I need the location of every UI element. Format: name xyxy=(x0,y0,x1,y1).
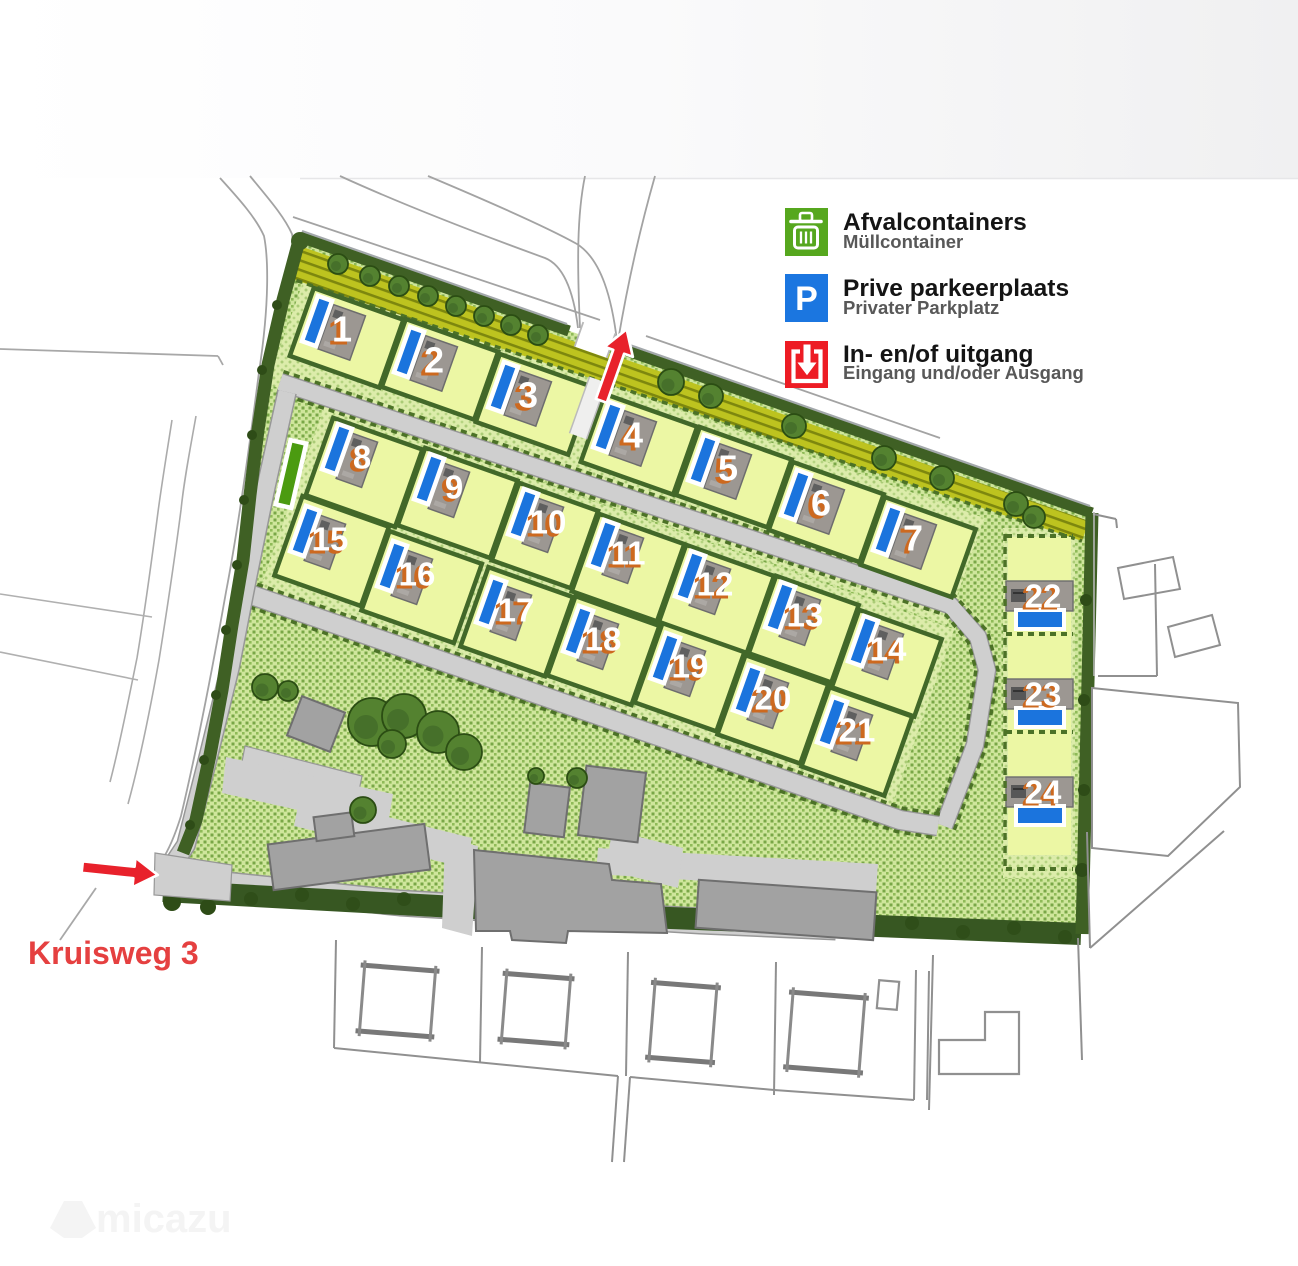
svg-text:20: 20 xyxy=(755,680,792,717)
svg-text:11: 11 xyxy=(611,535,646,572)
svg-text:3: 3 xyxy=(518,375,538,416)
svg-text:14: 14 xyxy=(870,631,907,668)
svg-text:Müllcontainer: Müllcontainer xyxy=(843,231,963,252)
svg-text:15: 15 xyxy=(312,521,349,558)
svg-text:8: 8 xyxy=(353,439,371,476)
svg-text:19: 19 xyxy=(672,648,709,685)
svg-text:12: 12 xyxy=(697,566,734,603)
svg-text:17: 17 xyxy=(498,592,535,629)
svg-text:21: 21 xyxy=(839,712,876,749)
svg-text:13: 13 xyxy=(787,597,824,634)
svg-text:6: 6 xyxy=(811,483,831,524)
svg-text:2: 2 xyxy=(424,340,444,381)
svg-text:4: 4 xyxy=(623,415,643,456)
svg-text:18: 18 xyxy=(585,621,622,658)
svg-text:1: 1 xyxy=(332,309,352,350)
svg-text:Privater Parkplatz: Privater Parkplatz xyxy=(843,297,999,318)
svg-text:Eingang und/oder Ausgang: Eingang und/oder Ausgang xyxy=(843,362,1084,383)
svg-text:10: 10 xyxy=(530,504,567,541)
svg-text:9: 9 xyxy=(445,469,463,506)
svg-text:Kruisweg 3: Kruisweg 3 xyxy=(28,935,199,971)
svg-text:24: 24 xyxy=(1025,774,1062,811)
svg-text:23: 23 xyxy=(1025,676,1062,713)
svg-text:P: P xyxy=(795,280,818,318)
svg-text:micazu: micazu xyxy=(96,1197,232,1241)
svg-text:5: 5 xyxy=(718,448,738,489)
svg-text:22: 22 xyxy=(1025,578,1062,615)
svg-text:16: 16 xyxy=(399,556,436,593)
svg-text:7: 7 xyxy=(903,518,923,559)
